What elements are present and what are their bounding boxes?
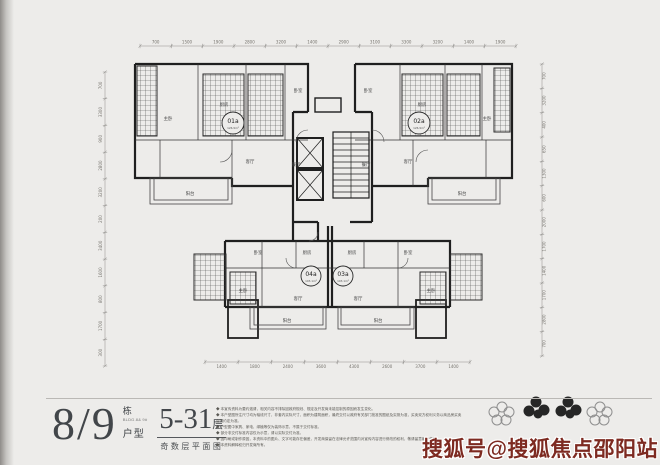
dim-label: 1400 bbox=[307, 40, 318, 45]
room-label: 厨房 bbox=[418, 101, 427, 108]
dim-label: 1700 bbox=[542, 290, 547, 301]
dim-label: 1400 bbox=[216, 364, 227, 369]
dim-label: 3200 bbox=[276, 40, 287, 45]
room-label: 餐厅 bbox=[362, 161, 371, 168]
room-label: 主卧 bbox=[164, 115, 173, 122]
dim-label: 3300 bbox=[98, 107, 103, 118]
room-label: 卧室 bbox=[364, 87, 373, 94]
dim-label: 1700 bbox=[542, 241, 547, 252]
dim-label: 1700 bbox=[98, 320, 103, 331]
floor-plan-svg: 7001500190028003200140029003100330032001… bbox=[0, 0, 660, 465]
dim-chain-top: 7001500190028003200140029003100330032001… bbox=[138, 40, 517, 49]
dim-chain-right: 7003200400650130060020001700140017002800… bbox=[540, 62, 547, 357]
dim-label: 1900 bbox=[495, 40, 506, 45]
svg-text:103.1m²: 103.1m² bbox=[305, 279, 317, 283]
watermark-text: 搜狐号@搜狐焦点邵阳站 bbox=[422, 433, 658, 463]
dim-label: 2800 bbox=[542, 314, 547, 325]
room-label: 客厅 bbox=[246, 158, 255, 165]
footer-divider bbox=[46, 398, 652, 399]
svg-text:103.1m²: 103.1m² bbox=[337, 279, 349, 283]
unit-label-02a: 02a 126.9m² bbox=[408, 112, 430, 134]
dim-label: 800 bbox=[98, 295, 103, 303]
dim-label: 1500 bbox=[182, 40, 193, 45]
dim-label: 2900 bbox=[339, 40, 350, 45]
svg-text:01a: 01a bbox=[227, 118, 239, 125]
dim-label: 3200 bbox=[542, 95, 547, 106]
title-block: 8/9 栋 BLDG.8& 9# 户型 5-31层 奇数层平面图 bbox=[52, 402, 226, 452]
room-label: 阳台 bbox=[458, 190, 467, 197]
room-label: 阳台 bbox=[186, 190, 195, 197]
dim-label: 1400 bbox=[464, 40, 475, 45]
elevator-icon bbox=[297, 138, 323, 200]
room-label: 客厅 bbox=[294, 295, 303, 302]
svg-text:126.9m²: 126.9m² bbox=[413, 126, 425, 130]
building-unit-label: 栋 bbox=[123, 407, 147, 417]
plant-icon bbox=[524, 397, 550, 419]
room-label: 阳台 bbox=[283, 317, 292, 324]
plant-icon bbox=[556, 397, 582, 419]
dim-label: 3100 bbox=[370, 40, 381, 45]
dim-label: 200 bbox=[98, 215, 103, 223]
building-sub-label: BLDG.8& 9# bbox=[123, 417, 147, 422]
dim-label: 650 bbox=[542, 145, 547, 153]
floor-plan-page: 7001500190028003200140029003100330032001… bbox=[0, 0, 660, 465]
plant-icon bbox=[587, 402, 612, 425]
building-number: 8/9 bbox=[52, 402, 117, 446]
dim-label: 3400 bbox=[98, 240, 103, 251]
dim-label: 2000 bbox=[542, 217, 547, 228]
dim-label: 3300 bbox=[401, 40, 412, 45]
dim-label: 2800 bbox=[245, 40, 256, 45]
svg-text:02a: 02a bbox=[413, 118, 425, 125]
dim-label: 1900 bbox=[213, 40, 224, 45]
dim-chain-bottom: 14001800240036004300260037001400 bbox=[203, 360, 471, 369]
dim-label: 4300 bbox=[349, 364, 360, 369]
dim-label: 300 bbox=[98, 348, 103, 356]
room-label: 厨房 bbox=[220, 101, 229, 108]
dim-label: 1300 bbox=[542, 168, 547, 179]
room-label: 主卧 bbox=[239, 287, 248, 294]
dim-label: 2600 bbox=[382, 364, 393, 369]
plant-icon bbox=[489, 402, 514, 425]
room-label: 主卧 bbox=[427, 287, 436, 294]
dim-label: 1800 bbox=[250, 364, 261, 369]
dim-label: 1600 bbox=[98, 267, 103, 278]
room-label: 卧室 bbox=[404, 249, 413, 256]
room-label: 客厅 bbox=[354, 295, 363, 302]
type-label: 户型 bbox=[123, 425, 147, 440]
room-label: 厨房 bbox=[348, 249, 357, 256]
unit-label-01a: 01a 126.9m² bbox=[222, 112, 244, 134]
svg-text:03a: 03a bbox=[337, 271, 349, 278]
room-label: 客厅 bbox=[404, 158, 413, 165]
svg-text:126.9m²: 126.9m² bbox=[227, 126, 239, 130]
dim-label: 3600 bbox=[316, 364, 327, 369]
dim-label: 600 bbox=[542, 194, 547, 202]
room-label: 卧室 bbox=[254, 249, 263, 256]
room-label: 主卧 bbox=[483, 115, 492, 122]
room-label: 阳台 bbox=[374, 317, 383, 324]
room-label: 餐厅 bbox=[292, 161, 301, 168]
dim-label: 1400 bbox=[448, 364, 459, 369]
room-label: 厨房 bbox=[303, 249, 312, 256]
unit-label-04a: 04a 103.1m² bbox=[301, 266, 321, 286]
disclaimer-line: ◆ 本户型图所注尺寸均为轴线尺寸，非套内实际尺寸，面积为建筑面积，最终交付以政府… bbox=[216, 413, 464, 425]
dim-label: 700 bbox=[542, 340, 547, 348]
dim-label: 3200 bbox=[98, 187, 103, 198]
dim-label: 3200 bbox=[433, 40, 444, 45]
dim-chain-left: 700330090028003200200340016008001700300 bbox=[98, 70, 107, 367]
dim-label: 700 bbox=[152, 40, 160, 45]
dim-label: 3700 bbox=[415, 364, 426, 369]
unit-label-03a: 03a 103.1m² bbox=[333, 266, 353, 286]
room-label: 卧室 bbox=[294, 87, 303, 94]
floor-range-number: 5-31 bbox=[159, 403, 212, 435]
dim-label: 1400 bbox=[542, 265, 547, 276]
dim-label: 700 bbox=[98, 81, 103, 89]
svg-text:04a: 04a bbox=[305, 271, 317, 278]
dim-label: 2400 bbox=[283, 364, 294, 369]
dim-label: 700 bbox=[542, 72, 547, 80]
dim-label: 400 bbox=[542, 121, 547, 129]
dim-label: 2800 bbox=[98, 160, 103, 171]
dim-label: 900 bbox=[98, 135, 103, 143]
